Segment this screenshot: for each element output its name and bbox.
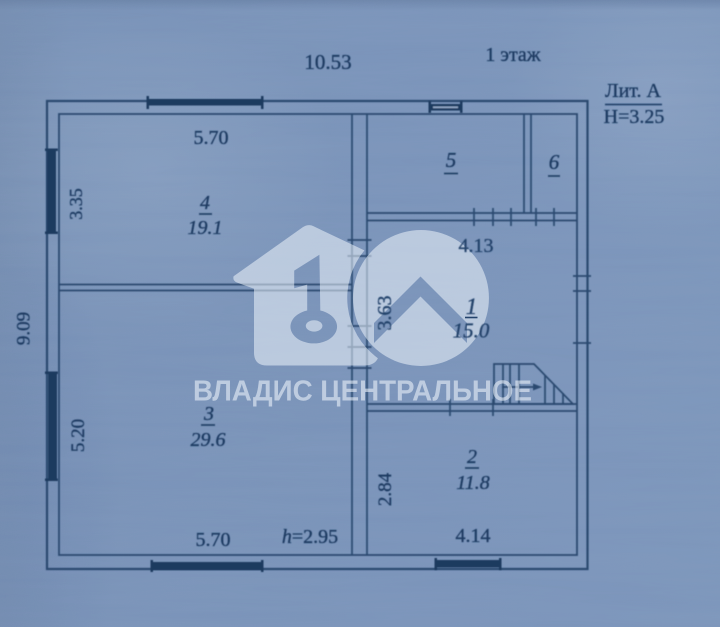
svg-text:5.70: 5.70 bbox=[194, 127, 229, 149]
svg-text:29.6: 29.6 bbox=[191, 429, 226, 451]
svg-text:h=2.95: h=2.95 bbox=[282, 526, 338, 548]
svg-text:11.8: 11.8 bbox=[456, 472, 490, 494]
svg-text:4: 4 bbox=[200, 192, 210, 214]
svg-text:9.09: 9.09 bbox=[14, 312, 35, 345]
svg-text:Н=3.25: Н=3.25 bbox=[604, 106, 665, 128]
svg-text:19.1: 19.1 bbox=[188, 217, 223, 239]
svg-text:3.35: 3.35 bbox=[66, 188, 86, 220]
svg-text:ВЛАДИС ЦЕНТРАЛЬНОЕ: ВЛАДИС ЦЕНТРАЛЬНОЕ bbox=[193, 376, 532, 408]
svg-text:6: 6 bbox=[549, 150, 560, 174]
svg-text:5: 5 bbox=[446, 148, 457, 172]
svg-text:4.13: 4.13 bbox=[459, 235, 494, 257]
svg-text:1 этаж: 1 этаж bbox=[485, 44, 540, 66]
svg-text:1: 1 bbox=[466, 294, 478, 319]
svg-text:2: 2 bbox=[467, 446, 477, 468]
svg-text:4.14: 4.14 bbox=[456, 525, 491, 547]
svg-text:10.53: 10.53 bbox=[304, 50, 351, 74]
svg-text:5.20: 5.20 bbox=[68, 419, 89, 452]
svg-text:Лит. А: Лит. А bbox=[605, 80, 662, 102]
svg-text:5.70: 5.70 bbox=[196, 529, 231, 551]
svg-text:15.0: 15.0 bbox=[453, 319, 490, 343]
svg-text:3.63: 3.63 bbox=[374, 296, 396, 331]
svg-text:2.84: 2.84 bbox=[375, 472, 396, 506]
